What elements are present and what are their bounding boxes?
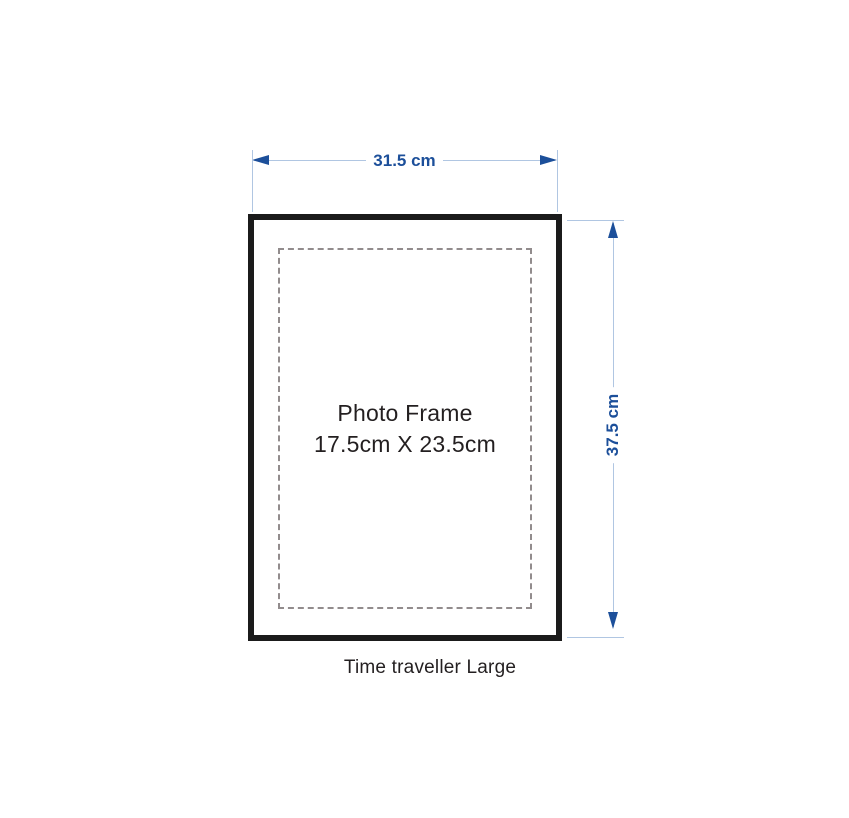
height-dimension: 37.5 cm — [598, 221, 629, 629]
extension-line-right — [557, 150, 558, 212]
frame-size-label: Photo Frame 17.5cm X 23.5cm — [314, 398, 496, 460]
extension-line-bottom — [567, 637, 624, 638]
width-dimension-label: 31.5 cm — [366, 151, 442, 171]
frame-dimension-diagram: 31.5 cm Photo Frame 17.5cm X 23.5cm 37.5… — [0, 0, 849, 818]
product-caption: Time traveller Large — [250, 657, 610, 679]
frame-label-line1: Photo Frame — [314, 398, 496, 429]
height-dimension-label-wrap: 37.5 cm — [598, 221, 629, 629]
photo-frame-outline: Photo Frame 17.5cm X 23.5cm — [248, 214, 562, 641]
extension-line-left — [252, 150, 253, 212]
width-dimension: 31.5 cm — [252, 145, 557, 175]
width-dimension-label-wrap: 31.5 cm — [252, 145, 557, 176]
height-dimension-label: 37.5 cm — [604, 387, 624, 463]
frame-label-line2: 17.5cm X 23.5cm — [314, 429, 496, 460]
mat-opening-dashed: Photo Frame 17.5cm X 23.5cm — [278, 248, 532, 609]
